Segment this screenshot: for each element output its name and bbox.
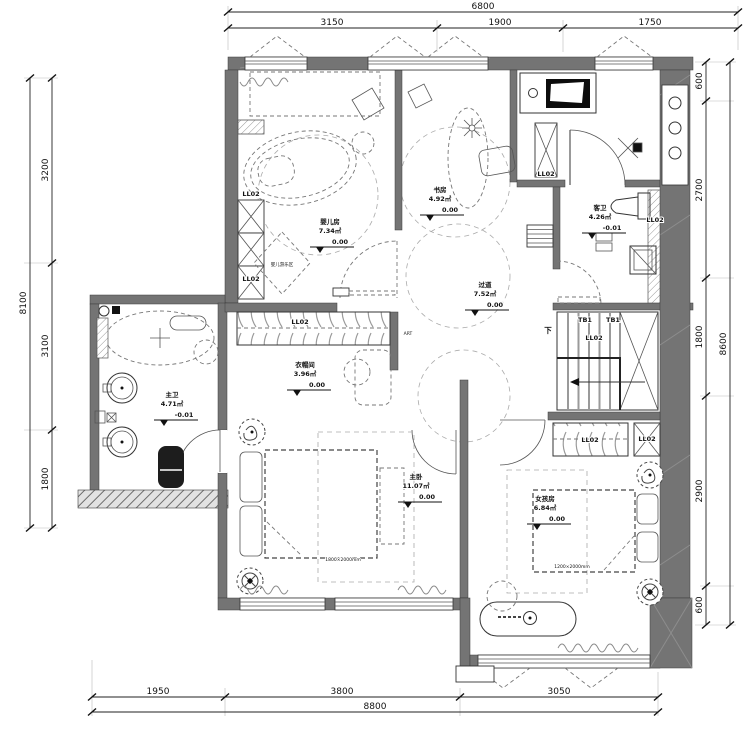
master-bed: [265, 450, 377, 558]
nightstand: [380, 468, 404, 544]
room-level: 0.00: [549, 515, 566, 523]
guest-bath-door: [557, 261, 601, 305]
wall-lamp: [99, 306, 109, 316]
dimension-chain-left: 8100 3200 3100 1800: [19, 75, 58, 532]
room-area: 4.92㎡: [429, 194, 452, 203]
basin-2: [103, 427, 137, 457]
downlight-symbol: [637, 579, 663, 605]
pillow-2: [240, 506, 262, 556]
ll02-tag: LL02: [242, 190, 259, 198]
dimension-chain-bottom: 1950 3800 3050 8800: [88, 660, 662, 716]
room-name: 主卧: [410, 472, 424, 481]
downlight-symbol: [237, 568, 263, 594]
ll02-tag: LL02: [638, 435, 655, 443]
room-area: 6.84㎡: [534, 503, 557, 512]
bay-ledge: [456, 666, 494, 682]
room-level: 0.00: [419, 493, 436, 501]
girls-pillow-2: [637, 532, 658, 562]
dim-left-seg: 3200: [41, 158, 51, 181]
window-desk: [480, 602, 576, 636]
shoe-cabinet: [527, 225, 553, 247]
room-level: 0.00: [442, 206, 459, 214]
girls-room-door: [500, 420, 545, 465]
shower-tray: [630, 246, 656, 274]
master-bath-door-gap: [218, 430, 227, 473]
ll02-tag: LL02: [291, 318, 308, 326]
dimension-chain-right: 600 2700 1800 2900 600 8600: [695, 59, 736, 629]
master-window-2: [335, 598, 453, 610]
furniture-nursery: [237, 72, 432, 294]
dim-bottom-total: 8800: [364, 702, 387, 712]
dim-top-seg: 1750: [639, 18, 662, 28]
room-label-corridor: 过道 7.52㎡ 0.00: [465, 280, 509, 316]
stool: [352, 132, 374, 154]
fan-symbol: [637, 462, 663, 488]
entry-door: [570, 130, 625, 185]
tb1-tag: TB1: [606, 316, 620, 324]
master-bed-size-tag: 1800×2000mm: [325, 557, 360, 563]
room-level: 0.00: [309, 381, 326, 389]
cloakroom-wardrobe: [237, 312, 390, 345]
room-label-guest-bath: 客卫 4.26㎡ -0.01: [582, 203, 626, 239]
girls-pillow-1: [637, 494, 658, 524]
switch-box: [112, 306, 120, 314]
dim-left-total: 8100: [19, 291, 29, 314]
guest-bath-top-wall-a: [517, 180, 565, 187]
entry-duct-column: [535, 123, 557, 177]
dimension-chain-top: 6800 3150 1900 1750: [224, 2, 742, 52]
room-area: 3.96㎡: [294, 369, 317, 378]
casement-symbols-bottom: [477, 668, 618, 688]
room-name: 书房: [434, 185, 448, 194]
tb1-tag: TB1: [578, 316, 592, 324]
sink-basin: [550, 82, 584, 103]
activity-zones: [258, 127, 510, 442]
furniture-study: [448, 108, 516, 208]
dim-bottom-seg: 3800: [331, 687, 354, 697]
inner-wall-left-upper: [218, 303, 227, 430]
room-area: 4.26㎡: [589, 212, 612, 221]
room-name: 婴儿房: [320, 217, 340, 226]
ceiling-fan-icon: [462, 118, 482, 138]
guest-toilet: [611, 193, 650, 219]
bath-accessory-1: [596, 233, 612, 241]
floor-plan-canvas: 婴儿房 7.34㎡ 0.00 书房 4.92㎡ 0.00 客卫 4.26㎡ -0…: [0, 0, 744, 737]
ll02-tag: LL02: [581, 436, 598, 444]
room-level: 0.00: [332, 238, 349, 246]
fan-symbol: [239, 419, 265, 445]
ll02-tag: LL02: [646, 216, 663, 224]
dressing-table: [355, 350, 391, 405]
furniture-cloakroom: [344, 350, 391, 405]
dim-bottom-seg: 3050: [548, 687, 571, 697]
room-name: 客卫: [593, 203, 608, 212]
room-label-master-bath: 主卫 4.71㎡ -0.01: [154, 390, 198, 426]
dim-right-seg: 600: [695, 72, 705, 89]
pillow-1: [240, 452, 262, 502]
room-level: -0.01: [175, 411, 194, 419]
room-name: 主卫: [166, 390, 180, 399]
girls-window: [478, 655, 650, 668]
guest-bath-left-wall: [553, 187, 560, 269]
bedroom-divider-wall: [460, 380, 468, 598]
ll02-tag: LL02: [585, 334, 602, 342]
toilet-chair: [158, 446, 184, 488]
girls-room-top-wall: [548, 412, 660, 420]
master-bath-door: [178, 430, 227, 473]
room-label-study: 书房 4.92㎡ 0.00: [420, 185, 464, 221]
baby-play-area-tag: 婴儿游乐区: [271, 261, 294, 268]
study-table: [448, 108, 488, 208]
dim-right-seg: 2900: [695, 479, 705, 502]
girls-carpet: [507, 470, 587, 593]
casement-symbols-top: [250, 36, 652, 57]
ll02-tag: LL02: [242, 275, 259, 283]
floor-cushion-1: [352, 88, 384, 120]
niche-shelf: [97, 318, 108, 358]
master-window-1: [240, 598, 325, 610]
room-level: 0.00: [487, 301, 504, 309]
dim-right-seg: 600: [695, 596, 705, 613]
room-area: 7.52㎡: [474, 289, 497, 298]
dim-top-total: 6800: [472, 2, 495, 12]
dim-right-seg: 1800: [695, 325, 705, 348]
room-area: 7.34㎡: [319, 226, 342, 235]
dim-right-seg: 2700: [695, 178, 705, 201]
nursery-study-divider: [395, 70, 402, 230]
ll02-tag: LL02: [537, 170, 554, 178]
study-entry-divider: [510, 70, 517, 182]
master-bath-top-wall: [90, 295, 225, 304]
furniture-master-bath: [95, 306, 218, 488]
room-level: -0.01: [603, 224, 622, 232]
dim-left-seg: 3100: [41, 334, 51, 357]
master-bedroom-door: [412, 430, 456, 474]
dim-right-total: 8600: [719, 332, 729, 355]
dim-top-seg: 1900: [489, 18, 512, 28]
tub-pillow: [170, 316, 206, 330]
furniture-girls-room: [480, 462, 663, 652]
dressing-stool: [344, 359, 370, 385]
inner-wall-left-lower: [218, 473, 227, 598]
room-label-cloakroom: 衣帽间 3.96㎡ 0.00: [287, 360, 331, 396]
appliance-panel: [662, 85, 688, 185]
floor-plan-drawing: 婴儿房 7.34㎡ 0.00 书房 4.92㎡ 0.00 客卫 4.26㎡ -0…: [0, 0, 744, 737]
exhaust-fan-icon: [618, 138, 642, 158]
stair-down-tag: 下: [544, 326, 552, 335]
dim-top-seg: 3150: [321, 18, 344, 28]
top-window-2: [368, 57, 488, 70]
room-label-master-bedroom: 主卧 11.07㎡ 0.00: [398, 472, 442, 508]
art-tag: ART: [404, 331, 413, 337]
floor-cushion-2: [408, 84, 432, 108]
left-wall: [225, 70, 238, 303]
step-wall: [460, 598, 470, 668]
stairs: [557, 312, 658, 410]
basin-1: [103, 373, 137, 403]
room-area: 4.71㎡: [161, 399, 184, 408]
room-name: 衣帽间: [295, 360, 315, 369]
dim-left-seg: 1800: [41, 467, 51, 490]
top-window-1: [245, 57, 307, 70]
nursery-cabinet-column: [238, 120, 264, 299]
cloakroom-sliding-door: [333, 288, 395, 296]
room-name: 过道: [479, 280, 493, 289]
room-name: 女孩房: [535, 494, 555, 503]
top-window-3: [595, 57, 653, 70]
cloakroom-top-wall: [225, 303, 337, 312]
master-bath-bottom-wall: [78, 490, 228, 508]
dim-bottom-seg: 1950: [147, 687, 170, 697]
room-area: 11.07㎡: [402, 481, 430, 490]
girls-bed-size-tag: 1200×2000mm: [554, 564, 589, 570]
guest-bath-top-wall-b: [625, 180, 660, 187]
bath-accessory-2: [596, 243, 612, 251]
